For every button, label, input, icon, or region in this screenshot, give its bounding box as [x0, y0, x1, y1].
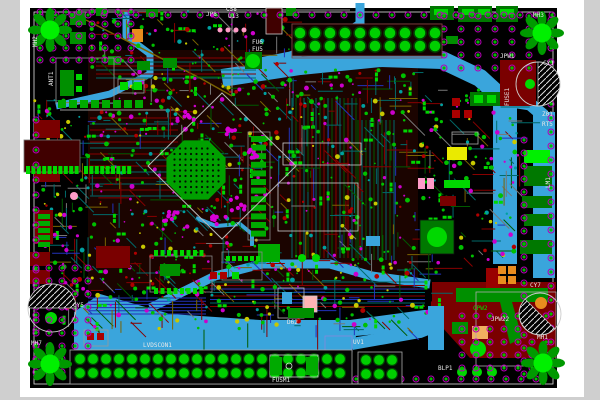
via [486, 13, 489, 16]
via [272, 215, 276, 219]
via [474, 366, 477, 369]
via [300, 116, 302, 118]
via [477, 88, 480, 91]
pin-pad [200, 250, 204, 256]
connector-pad [179, 368, 190, 379]
via [512, 150, 517, 155]
via [334, 69, 337, 72]
via [93, 325, 96, 328]
component[interactable] [452, 322, 468, 334]
via [174, 232, 176, 234]
via [510, 14, 513, 17]
component[interactable] [96, 246, 130, 268]
via [45, 204, 47, 206]
component[interactable] [220, 272, 227, 279]
via [197, 327, 200, 330]
via [34, 148, 37, 151]
via [410, 303, 415, 308]
via [136, 142, 140, 146]
via [34, 253, 37, 256]
component[interactable] [232, 272, 239, 279]
component[interactable] [97, 333, 104, 340]
magenta-via [236, 206, 240, 210]
via [189, 272, 191, 274]
connector-pad [218, 368, 229, 379]
via [354, 264, 356, 266]
connector-pad [361, 369, 372, 380]
via [395, 202, 398, 205]
via [70, 125, 72, 127]
pin-pad [38, 242, 50, 247]
via [369, 197, 373, 201]
via [145, 133, 147, 135]
pin-pad [167, 288, 171, 294]
bga-ball [195, 186, 197, 188]
magenta-via [230, 208, 234, 212]
via [207, 26, 211, 30]
via [374, 202, 378, 206]
pin-pad [38, 214, 50, 219]
via [134, 92, 137, 95]
via [161, 126, 165, 130]
via [493, 27, 496, 30]
via [237, 313, 241, 317]
via [216, 285, 221, 290]
via [304, 86, 309, 91]
connector-pad [244, 368, 255, 379]
via [522, 372, 525, 375]
bga-ball [212, 186, 214, 188]
round-pad [298, 254, 306, 262]
via [317, 102, 320, 105]
via [130, 184, 135, 189]
via [86, 318, 89, 321]
chip-pad [411, 161, 415, 164]
via [131, 149, 134, 152]
via [489, 220, 492, 223]
via [129, 58, 132, 61]
via [370, 286, 373, 289]
via [205, 209, 208, 212]
chip-pad [311, 112, 314, 116]
component[interactable] [440, 196, 456, 206]
via [476, 27, 479, 30]
via [86, 292, 89, 295]
via [504, 161, 506, 163]
via [194, 105, 197, 108]
via [144, 169, 147, 172]
pin-pad [256, 256, 260, 261]
via [143, 97, 146, 100]
bga-ball [217, 180, 219, 182]
via [389, 263, 392, 266]
pin-pad [53, 166, 57, 174]
via [518, 13, 521, 16]
via [352, 94, 354, 96]
via [549, 228, 552, 231]
via [286, 104, 288, 106]
chip-pad [193, 264, 196, 268]
chip-pad [382, 266, 385, 270]
connector-pad [114, 354, 125, 365]
via [312, 136, 314, 138]
connector-bottom-right[interactable] [358, 352, 402, 384]
pin-pad [75, 166, 79, 174]
via [449, 171, 453, 175]
via [210, 205, 213, 208]
via [220, 97, 225, 102]
via [422, 99, 425, 102]
pin-pad [174, 288, 178, 294]
via [198, 282, 201, 285]
via [218, 273, 221, 276]
via [34, 163, 37, 166]
connector-pad [127, 368, 138, 379]
bga-ball [201, 186, 203, 188]
via [502, 327, 505, 330]
magenta-via [242, 204, 246, 208]
via [207, 260, 210, 263]
pin-pad [251, 196, 266, 202]
via [167, 281, 169, 283]
component[interactable] [447, 147, 467, 160]
connector-pad [374, 369, 385, 380]
via [262, 13, 265, 16]
via [100, 203, 102, 205]
via [170, 149, 173, 152]
connector-pad [257, 368, 268, 379]
via [130, 51, 133, 54]
via [289, 234, 292, 237]
connector-top-header[interactable] [292, 24, 442, 56]
bga-ball [212, 153, 214, 155]
component[interactable] [498, 266, 506, 274]
via [175, 108, 179, 112]
via [474, 314, 477, 317]
chip-pad [286, 273, 289, 277]
via [241, 169, 243, 171]
via [303, 126, 307, 130]
component[interactable] [120, 82, 128, 90]
via [522, 268, 525, 271]
via [351, 258, 354, 261]
via [349, 215, 351, 217]
via [162, 212, 164, 214]
via [274, 322, 278, 326]
component[interactable] [464, 110, 472, 118]
component[interactable] [428, 306, 444, 350]
component[interactable] [134, 82, 142, 90]
via [397, 320, 401, 324]
component[interactable] [366, 236, 380, 246]
component[interactable] [474, 95, 483, 103]
via [534, 377, 537, 380]
component[interactable] [486, 268, 500, 288]
via [288, 150, 292, 154]
connector-pad [361, 355, 372, 366]
component[interactable] [282, 292, 292, 304]
via [200, 120, 203, 123]
pin-pad [26, 166, 30, 174]
via [442, 209, 445, 212]
via [156, 227, 158, 229]
bga-ball [217, 175, 219, 177]
via [491, 110, 495, 114]
via [240, 178, 243, 181]
component[interactable] [524, 150, 550, 163]
via [95, 183, 100, 188]
via [285, 221, 288, 224]
via [442, 40, 445, 43]
pin-pad [48, 166, 52, 174]
bga-ball [173, 164, 175, 166]
bga-ball [173, 180, 175, 182]
connector-pad [294, 27, 306, 39]
via [488, 340, 491, 343]
via [53, 260, 57, 264]
chip-pad [416, 161, 420, 164]
ref-des-label: LVDSCON1 [143, 342, 172, 349]
pin-pad [122, 166, 126, 174]
via [213, 206, 216, 209]
bga-ball [201, 169, 203, 171]
chip-pad [98, 304, 102, 307]
via [226, 85, 230, 89]
via [550, 13, 553, 16]
component[interactable] [472, 326, 488, 339]
via [363, 323, 368, 328]
via [527, 66, 530, 69]
component[interactable] [498, 276, 506, 284]
component[interactable] [76, 74, 82, 80]
via [116, 34, 119, 37]
bga-ball [195, 164, 197, 166]
via [502, 366, 505, 369]
via [129, 22, 132, 25]
via [522, 281, 525, 284]
connector-pad [387, 369, 398, 380]
via [489, 165, 493, 169]
via [316, 130, 320, 134]
via [166, 90, 168, 92]
via [159, 317, 164, 322]
via [474, 327, 477, 330]
chip-pad [103, 304, 107, 307]
via [193, 246, 195, 248]
via [116, 10, 119, 13]
via [153, 76, 157, 80]
via [172, 89, 175, 92]
component[interactable] [76, 86, 82, 92]
via [350, 313, 353, 316]
bga-ball [184, 186, 186, 188]
via [487, 258, 490, 261]
connector-pad [153, 368, 164, 379]
connector-pad [88, 354, 99, 365]
via [90, 65, 94, 69]
via [80, 271, 82, 273]
bga-ball [195, 175, 197, 177]
bga-ball [206, 175, 208, 177]
ref-des-label: JPW22 [491, 316, 509, 323]
via [304, 70, 307, 73]
pin-pad [38, 235, 50, 240]
via [62, 213, 66, 217]
via [393, 315, 396, 318]
pin-pad [80, 100, 88, 108]
via [313, 206, 315, 208]
component[interactable] [60, 70, 74, 96]
via [527, 53, 530, 56]
via [512, 245, 516, 249]
component[interactable] [427, 178, 434, 189]
via [73, 292, 76, 295]
via [422, 304, 424, 306]
component[interactable] [446, 36, 458, 44]
chip-pad [448, 216, 452, 219]
magenta-via [252, 155, 256, 159]
chip-pad [382, 271, 385, 275]
via [162, 77, 166, 81]
component[interactable] [70, 32, 86, 44]
component[interactable] [258, 244, 280, 262]
component[interactable] [210, 272, 217, 279]
via [64, 127, 66, 129]
via [151, 282, 154, 285]
chip-pad [117, 232, 121, 235]
component[interactable] [508, 276, 516, 284]
component[interactable] [418, 178, 425, 189]
component[interactable] [137, 61, 150, 70]
via [452, 164, 457, 169]
via [396, 215, 398, 217]
via [136, 44, 141, 49]
via [99, 134, 103, 138]
via [183, 210, 186, 213]
via [329, 83, 333, 87]
component[interactable] [288, 308, 314, 318]
chip-pad [160, 11, 163, 15]
bga-ball [212, 169, 214, 171]
via [84, 176, 87, 179]
chip-pad [145, 128, 149, 131]
magenta-via [248, 148, 252, 152]
bga-ball [217, 158, 219, 160]
via [485, 157, 487, 159]
via [312, 145, 314, 147]
via [493, 40, 496, 43]
via [131, 73, 134, 76]
via [493, 53, 496, 56]
via [488, 353, 491, 356]
pcb-canvas[interactable]: MH2ANT1JP8C58U13FU6FU5MH3CY1JPW1FUSE1Z01… [0, 0, 600, 400]
via [338, 300, 342, 304]
via [246, 13, 249, 16]
via [64, 58, 67, 61]
pin-pad [106, 166, 110, 174]
via [217, 299, 221, 303]
bga-ball [173, 175, 175, 177]
via [238, 267, 241, 270]
component[interactable] [452, 98, 460, 106]
mounting-hole-MH1[interactable] [521, 341, 565, 385]
component[interactable] [163, 58, 177, 68]
via [287, 78, 292, 83]
component[interactable] [508, 266, 516, 274]
via [549, 242, 552, 245]
chip-pad [140, 128, 144, 131]
bga-ball [195, 180, 197, 182]
via [95, 293, 100, 298]
via [460, 327, 463, 330]
via [368, 179, 370, 181]
via [369, 318, 371, 320]
via [86, 331, 89, 334]
via [154, 242, 158, 246]
via [342, 276, 345, 279]
via [399, 206, 401, 208]
via [97, 115, 102, 120]
via [522, 138, 525, 141]
ref-des-label: ANT1 [48, 71, 55, 86]
via [278, 118, 281, 121]
via [380, 112, 385, 117]
via [516, 366, 519, 369]
connector-pad [339, 27, 351, 39]
bga-ball [190, 153, 192, 155]
via [342, 297, 345, 300]
component[interactable] [487, 95, 496, 103]
pin-pad [251, 179, 266, 185]
via [137, 201, 139, 203]
component[interactable] [444, 180, 470, 188]
magenta-via [164, 218, 168, 222]
via [60, 344, 63, 347]
via [199, 57, 201, 59]
via [425, 146, 428, 149]
via [87, 186, 90, 189]
via [192, 62, 194, 64]
via [276, 107, 279, 110]
via [118, 75, 121, 78]
via [493, 14, 496, 17]
via [203, 95, 206, 98]
mounting-hole-MH7[interactable] [28, 342, 72, 386]
via [403, 195, 405, 197]
chip-pad [369, 139, 373, 142]
via [399, 237, 401, 239]
component[interactable] [160, 264, 180, 276]
via [167, 96, 171, 100]
via [474, 377, 477, 380]
via [105, 111, 107, 113]
pcb-window: MH2ANT1JP8C58U13FU6FU5MH3CY1JPW1FUSE1Z01… [0, 0, 600, 400]
bga-ball [201, 147, 203, 149]
via [350, 264, 353, 267]
via [373, 99, 378, 104]
via [468, 118, 470, 120]
hole-pad [41, 355, 60, 374]
via [354, 303, 359, 308]
via [141, 181, 144, 184]
chip-pad [113, 219, 116, 223]
via [104, 141, 109, 146]
via [146, 32, 148, 34]
connector-pad [384, 27, 396, 39]
component[interactable] [452, 110, 460, 118]
via [162, 228, 165, 231]
via [399, 90, 402, 93]
